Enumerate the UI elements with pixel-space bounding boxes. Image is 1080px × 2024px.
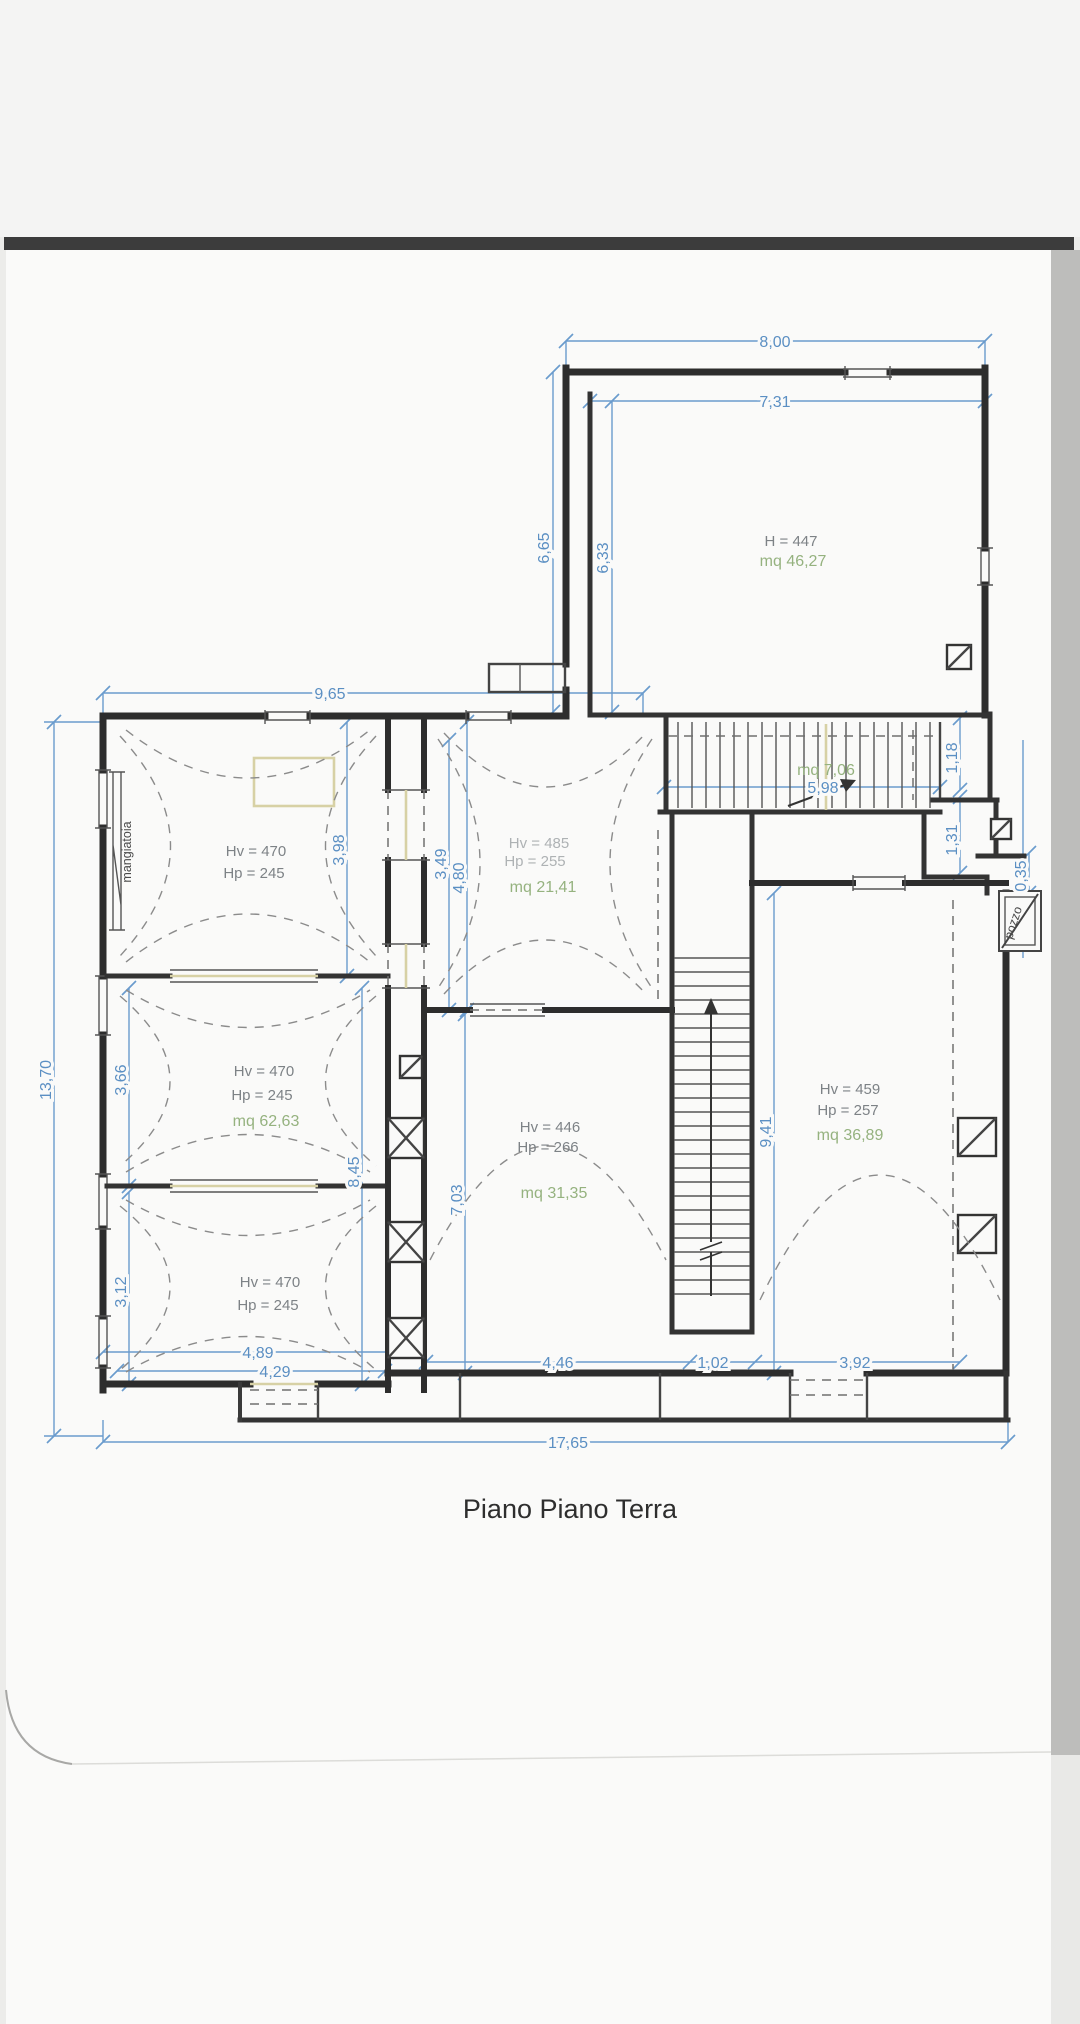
- dim-label-right-height: 9,41: [758, 1116, 775, 1147]
- hall-hv-label: Hv = 485: [509, 835, 569, 852]
- floorplan-scan: pozzo H = 447 mq 46,27 Hv = 470 Hp = 245…: [0, 0, 1080, 2024]
- dim-label-well: 0,35: [1013, 860, 1030, 891]
- left-middle-hp-label: Hp = 245: [231, 1087, 292, 1104]
- dim-label-bottom-total: 17,65: [548, 1435, 588, 1452]
- dim-label-main-left: 13,70: [38, 1060, 55, 1100]
- annex-area-label: mq 46,27: [760, 553, 827, 570]
- hall-area-label: mq 21,41: [510, 879, 577, 896]
- left-bottom-hp-label: Hp = 245: [237, 1297, 298, 1314]
- scanner-band: [4, 237, 1074, 250]
- dim-label-hall-a: 3,49: [433, 848, 450, 879]
- dim-label-main-top: 9,65: [314, 686, 345, 703]
- center-area-label: mq 31,35: [521, 1185, 588, 1202]
- dim-label-room3-height: 3,12: [113, 1276, 130, 1307]
- center-hv-label: Hv = 446: [520, 1119, 580, 1136]
- scan-background: [0, 0, 1080, 2024]
- annex-height-label: H = 447: [765, 533, 818, 550]
- dim-label-left-col: 8,45: [346, 1156, 363, 1187]
- left-middle-area-label: mq 62,63: [233, 1113, 300, 1130]
- left-top-hp-label: Hp = 245: [223, 865, 284, 882]
- dim-label-stair-hall: 5,98: [807, 780, 838, 797]
- left-bottom-hv-label: Hv = 470: [240, 1274, 300, 1291]
- dim-label-bottom-left-inner: 4,29: [259, 1364, 290, 1381]
- dim-label-annex-left-inner: 6,33: [595, 542, 612, 573]
- dim-label-top-outer: 8,00: [759, 334, 790, 351]
- dim-label-center-height: 7,03: [449, 1184, 466, 1215]
- dim-label-room2-height: 3,66: [113, 1064, 130, 1095]
- dim-label-top-inner: 7,31: [759, 394, 790, 411]
- stairs-area-label: mq 7,06: [797, 762, 855, 779]
- drawing-title: Piano Piano Terra: [463, 1494, 678, 1524]
- hall-hp-label: Hp = 255: [504, 853, 565, 870]
- dim-label-hall-b: 4,80: [451, 862, 468, 893]
- dim-label-bottom-left-outer: 4,89: [242, 1345, 273, 1362]
- dim-label-bottom-stair: 1,02: [697, 1355, 728, 1372]
- dim-label-landing: 1,18: [944, 742, 961, 773]
- dim-label-bottom-center: 4,46: [542, 1355, 573, 1372]
- left-top-hv-label: Hv = 470: [226, 843, 286, 860]
- dim-label-bottom-right: 3,92: [839, 1355, 870, 1372]
- well: pozzo: [999, 891, 1041, 951]
- center-hp-label: Hp = 266: [517, 1139, 578, 1156]
- manger-label: mangiatoia: [120, 821, 134, 882]
- right-hv-label: Hv = 459: [820, 1081, 880, 1098]
- paper-right-edge: [1051, 250, 1080, 1755]
- right-area-label: mq 36,89: [817, 1127, 884, 1144]
- left-middle-hv-label: Hv = 470: [234, 1063, 294, 1080]
- dim-label-annex-left-outer: 6,65: [536, 532, 553, 563]
- dim-label-passage: 1,31: [944, 824, 961, 855]
- dim-label-room1-height: 3,98: [331, 834, 348, 865]
- right-hp-label: Hp = 257: [817, 1102, 878, 1119]
